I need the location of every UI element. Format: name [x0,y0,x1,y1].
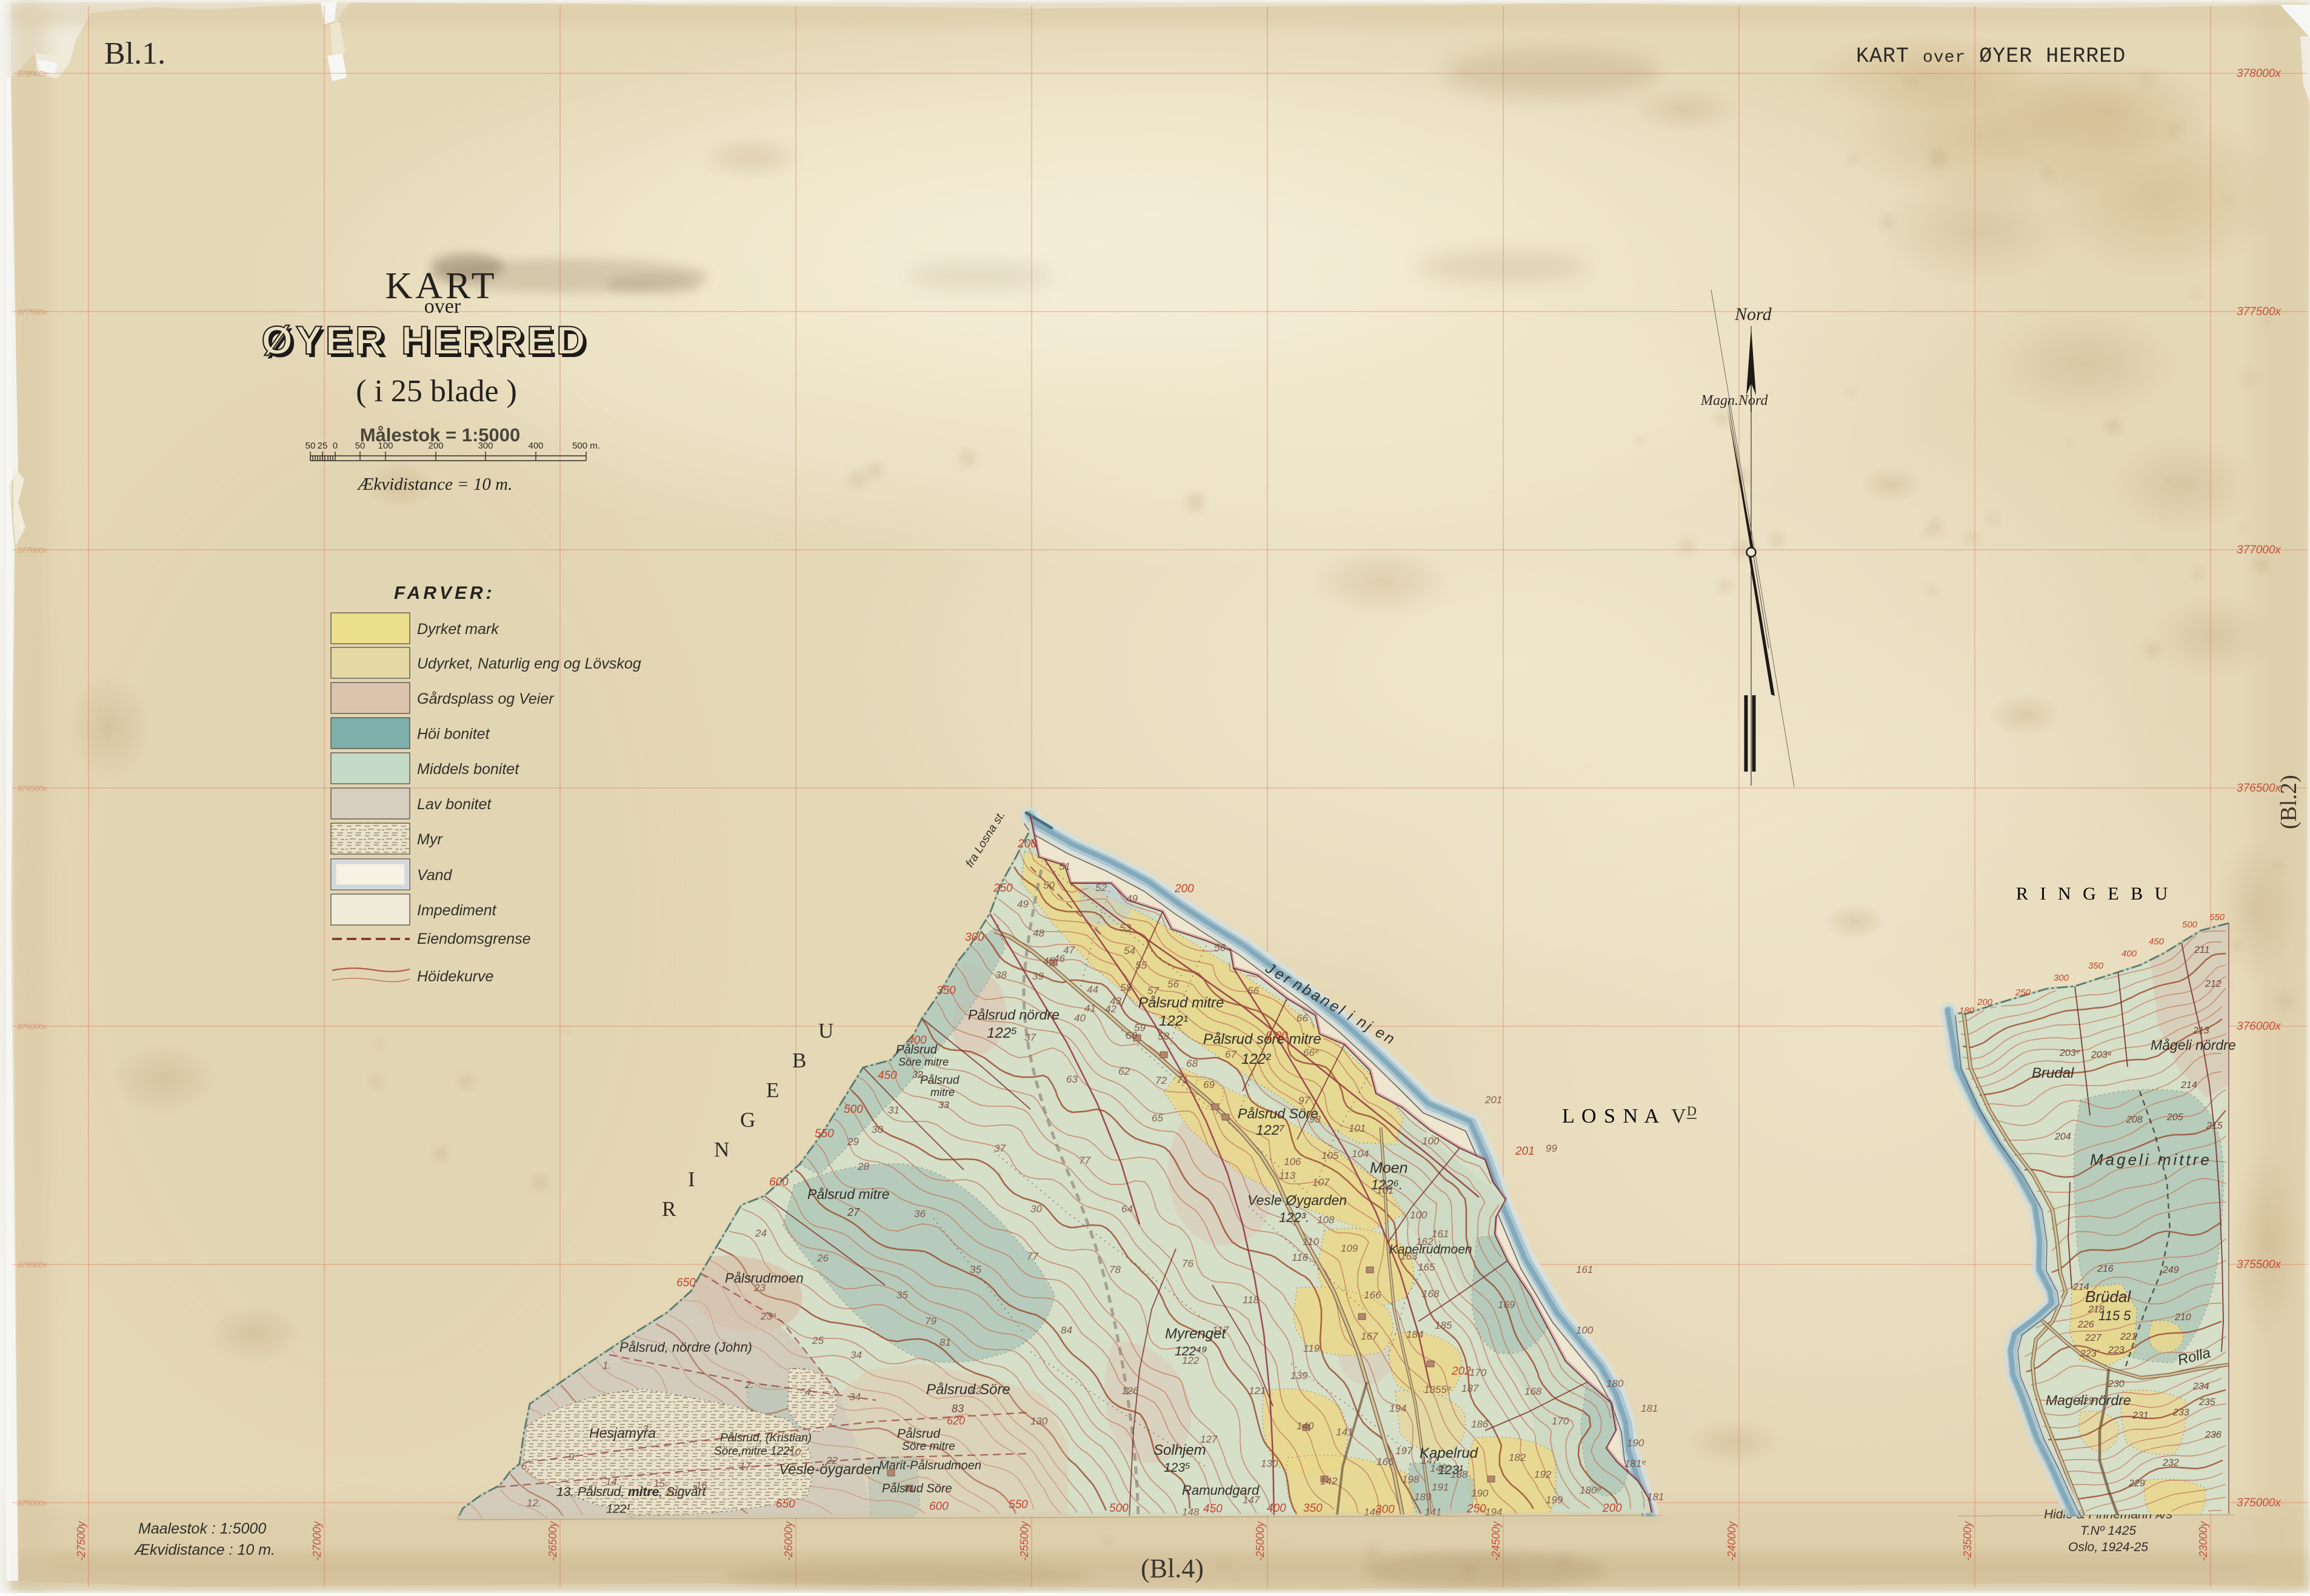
svg-text:T.Nº 1425: T.Nº 1425 [2080,1524,2136,1538]
svg-text:42: 42 [1105,1003,1117,1015]
svg-text:49: 49 [1126,893,1138,904]
svg-text:48: 48 [1033,927,1044,939]
svg-text:180: 180 [1606,1378,1624,1389]
svg-text:over: over [424,295,461,318]
svg-text:106: 106 [1284,1156,1301,1167]
svg-text:377500x: 377500x [2237,306,2282,318]
svg-text:-25000y: -25000y [1254,1521,1266,1561]
svg-text:200: 200 [1602,1502,1622,1515]
svg-text:71: 71 [1177,1074,1188,1086]
svg-text:Brudal: Brudal [2032,1065,2074,1081]
svg-text:37: 37 [1024,1032,1036,1043]
svg-text:Solhjem: Solhjem [1153,1442,1206,1458]
svg-text:mitre: mitre [930,1086,955,1098]
svg-text:35: 35 [970,1264,981,1275]
svg-text:0: 0 [333,441,338,451]
svg-text:36: 36 [914,1208,926,1220]
svg-text:Myr: Myr [417,831,443,848]
svg-text:300: 300 [478,441,493,451]
svg-text:186: 186 [1471,1418,1489,1430]
svg-text:400: 400 [1267,1502,1286,1515]
svg-text:214: 214 [2180,1080,2197,1090]
svg-text:66ᵉ: 66ᵉ [1303,1047,1319,1058]
svg-text:141: 141 [1336,1426,1353,1438]
svg-text:147: 147 [1243,1494,1260,1506]
svg-text:229: 229 [2128,1478,2145,1489]
svg-text:83: 83 [952,1403,964,1415]
svg-text:38: 38 [995,969,1007,981]
svg-text:R: R [662,1197,676,1221]
svg-text:205: 205 [2166,1112,2183,1123]
svg-text:E: E [766,1078,779,1102]
svg-text:100: 100 [1576,1324,1594,1336]
svg-text:-27000y: -27000y [311,1521,323,1561]
svg-text:166: 166 [1377,1456,1394,1467]
svg-text:13. Pålsrud, mitre, Sigvårt: 13. Pålsrud, mitre, Sigvårt [556,1485,706,1499]
svg-text:Bl.1.: Bl.1. [104,36,165,71]
svg-text:66: 66 [1297,1012,1308,1024]
svg-text:181: 181 [1647,1491,1664,1503]
svg-text:118: 118 [1243,1294,1260,1306]
svg-text:29: 29 [847,1136,859,1147]
svg-text:130: 130 [1261,1458,1278,1469]
svg-text:122: 122 [1182,1355,1200,1366]
svg-text:Moen: Moen [1370,1160,1408,1177]
svg-text:187: 187 [1461,1383,1479,1394]
svg-text:31: 31 [888,1104,900,1116]
svg-text:223´: 223´ [2080,1349,2100,1359]
svg-text:110: 110 [1303,1236,1320,1247]
svg-text:Magn.Nord: Magn.Nord [1700,393,1768,409]
svg-text:G: G [740,1108,755,1132]
svg-text:200: 200 [1977,997,1993,1007]
svg-text:Eiendomsgrense: Eiendomsgrense [417,930,531,947]
svg-text:450: 450 [2149,937,2165,947]
svg-text:50: 50 [355,441,366,451]
svg-text:122¹: 122¹ [606,1503,630,1516]
svg-text:1855ᵉ: 1855ᵉ [1424,1384,1451,1395]
svg-text:189: 189 [1414,1491,1432,1503]
svg-text:65: 65 [1152,1112,1163,1124]
svg-text:214: 214 [2072,1282,2089,1292]
svg-text:22: 22 [826,1455,838,1466]
svg-text:130: 130 [1030,1415,1048,1427]
svg-text:169: 169 [1498,1299,1515,1311]
svg-text:Ækvidistance = 10 m.: Ækvidistance = 10 m. [356,475,513,494]
svg-text:192: 192 [1534,1469,1552,1480]
svg-text:( i 25 blade ): ( i 25 blade ) [356,374,517,409]
svg-text:FARVER:: FARVER: [394,583,495,603]
svg-text:375000x: 375000x [17,1498,47,1508]
svg-text:201: 201 [1484,1094,1502,1106]
svg-text:78: 78 [1109,1264,1121,1275]
svg-text:77: 77 [1079,1155,1090,1166]
svg-text:76: 76 [1182,1258,1193,1269]
svg-text:450: 450 [1203,1503,1223,1515]
svg-text:Höidekurve: Höidekurve [417,968,493,985]
svg-text:99: 99 [1546,1143,1557,1154]
svg-text:202: 202 [1451,1365,1471,1378]
svg-text:550: 550 [2209,912,2225,923]
svg-text:197: 197 [1395,1445,1413,1457]
svg-text:98: 98 [1309,1114,1321,1125]
svg-text:229: 229 [2077,1396,2094,1406]
svg-text:376500x: 376500x [17,784,47,793]
svg-text:-26500y: -26500y [547,1521,559,1561]
svg-text:216: 216 [2097,1264,2114,1274]
svg-text:210: 210 [2174,1312,2191,1323]
svg-text:203ᵉ: 203ᵉ [2059,1048,2080,1058]
svg-text:100: 100 [378,441,393,451]
svg-text:600: 600 [769,1176,789,1189]
svg-text:250: 250 [2015,987,2031,998]
svg-text:68: 68 [1186,1058,1198,1069]
svg-text:190: 190 [1471,1487,1489,1499]
svg-text:Pålsrud, nördre (John): Pålsrud, nördre (John) [619,1340,752,1355]
svg-text:Pålsrud: Pålsrud [897,1427,941,1441]
svg-text:378000x: 378000x [2237,67,2282,80]
svg-text:52: 52 [1095,882,1107,893]
svg-text:2.: 2. [744,1379,753,1391]
svg-text:Nord: Nord [1734,304,1772,324]
svg-text:-24000y: -24000y [1726,1521,1738,1561]
svg-text:24: 24 [755,1227,767,1239]
svg-text:Dyrket mark: Dyrket mark [417,621,499,638]
svg-text:180: 180 [1959,1006,1975,1016]
svg-text:Söre,mitre 122²: Söre,mitre 122² [714,1445,794,1458]
svg-text:Mageli mittre: Mageli mittre [2090,1150,2212,1169]
svg-text:376000x: 376000x [2237,1020,2282,1033]
svg-text:208: 208 [2126,1115,2143,1125]
svg-text:30: 30 [872,1124,883,1135]
svg-text:212: 212 [2205,979,2222,989]
svg-text:34: 34 [849,1391,861,1403]
svg-text:N: N [714,1138,729,1161]
svg-text:49: 49 [1017,898,1029,910]
svg-text:-26000y: -26000y [783,1521,795,1561]
svg-text:234: 234 [2192,1381,2209,1392]
svg-text:79: 79 [925,1315,936,1327]
svg-text:-24500y: -24500y [1490,1521,1502,1561]
svg-text:104: 104 [1352,1148,1369,1160]
svg-text:Höi bonitet: Höi bonitet [417,726,490,743]
svg-text:101: 101 [1377,1184,1394,1196]
svg-text:16.: 16. [696,1480,710,1491]
svg-text:50: 50 [305,441,316,451]
svg-text:23: 23 [753,1282,766,1294]
svg-text:63: 63 [1066,1073,1078,1085]
svg-text:500: 500 [1109,1502,1129,1515]
svg-text:41: 41 [1084,1003,1096,1014]
svg-text:198: 198 [1402,1474,1420,1485]
svg-text:167: 167 [1361,1331,1378,1342]
svg-text:250: 250 [993,882,1013,895]
svg-text:97: 97 [1298,1095,1310,1106]
svg-text:56: 56 [1167,978,1179,990]
svg-text:375000x: 375000x [2237,1497,2282,1509]
svg-text:57: 57 [1147,985,1159,997]
svg-text:14.: 14. [606,1476,620,1487]
svg-text:53: 53 [1120,922,1131,933]
svg-text:142: 142 [1320,1475,1338,1487]
svg-text:Gårdsplass og Veier: Gårdsplass og Veier [417,690,555,707]
svg-text:26: 26 [816,1252,829,1264]
svg-text:37: 37 [994,1143,1006,1154]
svg-text:377000x: 377000x [17,546,47,555]
svg-text:Pålsrud Söre: Pålsrud Söre [882,1482,952,1495]
svg-text:375500x: 375500x [17,1260,47,1269]
svg-text:R I N G E B U: R I N G E B U [2016,884,2171,904]
svg-text:-23000y: -23000y [2197,1521,2209,1561]
svg-text:201: 201 [1515,1145,1535,1158]
svg-text:400: 400 [907,1034,927,1047]
svg-text:376500x: 376500x [2237,782,2282,795]
svg-text:121: 121 [1249,1385,1266,1397]
svg-text:L O S N A: L O S N A [1562,1105,1660,1127]
svg-text:62: 62 [1118,1066,1130,1077]
svg-text:67: 67 [1225,1049,1237,1060]
svg-text:(Bl.4): (Bl.4) [1141,1554,1204,1583]
svg-text:226: 226 [2077,1320,2094,1330]
svg-text:127: 127 [1200,1434,1218,1445]
svg-text:123⁵: 123⁵ [1164,1461,1190,1475]
svg-text:15.: 15. [653,1478,668,1489]
svg-text:72: 72 [1155,1075,1167,1086]
svg-text:122⁷: 122⁷ [1256,1122,1284,1138]
svg-text:D: D [1687,1103,1697,1118]
svg-text:350: 350 [1303,1502,1323,1515]
svg-text:200: 200 [1174,883,1194,895]
svg-text:55: 55 [1135,960,1147,971]
svg-text:Mågeli nördre: Mågeli nördre [2151,1037,2236,1053]
svg-text:377500x: 377500x [17,307,47,316]
svg-text:45: 45 [1043,955,1055,967]
svg-text:163: 163 [1400,1250,1418,1262]
svg-text:126: 126 [1121,1385,1139,1397]
svg-text:Söre mitre: Söre mitre [902,1440,955,1453]
svg-text:231: 231 [2132,1411,2149,1421]
svg-text:161: 161 [1576,1264,1593,1275]
svg-text:Pålsrud nördre: Pålsrud nördre [968,1007,1060,1023]
svg-text:33: 33 [938,1100,949,1110]
svg-text:Pålsrud Söre: Pålsrud Söre [926,1381,1010,1398]
svg-text:81: 81 [940,1337,951,1348]
svg-text:376000x: 376000x [17,1022,47,1031]
svg-text:Söre mitre: Söre mitre [898,1056,949,1068]
svg-text:-27500y: -27500y [75,1521,87,1561]
svg-text:30: 30 [1030,1203,1042,1215]
svg-text:64: 64 [1121,1203,1133,1215]
svg-text:Pålsrud mitre: Pålsrud mitre [807,1186,889,1202]
svg-text:Vand: Vand [417,867,453,884]
svg-text:17.: 17. [739,1460,754,1472]
svg-text:139: 139 [1290,1370,1308,1381]
svg-text:2.00: 2.00 [1265,1030,1288,1043]
svg-text:116: 116 [1292,1252,1309,1263]
svg-text:ØYER HERRED: ØYER HERRED [261,318,588,362]
svg-text:Middels bonitet: Middels bonitet [417,761,519,778]
svg-text:27: 27 [847,1206,860,1218]
svg-text:232: 232 [2162,1458,2179,1468]
svg-text:58: 58 [1158,1030,1169,1042]
svg-text:46: 46 [1053,953,1065,964]
svg-text:25: 25 [812,1335,824,1346]
svg-text:148: 148 [1430,1463,1447,1474]
svg-text:100: 100 [1422,1135,1440,1147]
svg-text:170: 170 [1552,1415,1569,1427]
svg-text:221: 221 [2120,1332,2137,1342]
svg-text:12.: 12. [527,1497,541,1509]
svg-text:25: 25 [318,441,328,451]
svg-text:44: 44 [1087,984,1098,995]
svg-text:Pålsrud Söre: Pålsrud Söre [1238,1106,1318,1121]
svg-text:450: 450 [878,1069,897,1082]
svg-text:10.: 10. [789,1446,804,1458]
svg-text:300: 300 [2054,973,2069,983]
svg-text:181ᵉ: 181ᵉ [1624,1458,1646,1469]
svg-text:Ækvidistance : 10 m.: Ækvidistance : 10 m. [134,1541,275,1558]
svg-text:162: 162 [1416,1236,1434,1247]
svg-text:215: 215 [2206,1121,2223,1131]
svg-text:109: 109 [1341,1243,1358,1254]
svg-text:V: V [1671,1105,1686,1127]
svg-text:165: 165 [1418,1261,1435,1273]
svg-text:166: 166 [1364,1289,1381,1301]
svg-text:168: 168 [1524,1386,1542,1397]
svg-text:60: 60 [1126,1030,1137,1041]
svg-text:105: 105 [1321,1150,1339,1161]
svg-text:218: 218 [2088,1304,2105,1315]
svg-text:-23500y: -23500y [1961,1521,1974,1561]
svg-text:9.: 9. [569,1451,577,1463]
svg-text:182: 182 [1509,1452,1526,1463]
svg-text:375500x: 375500x [2237,1258,2282,1271]
svg-text:550: 550 [1009,1498,1028,1511]
svg-text:119: 119 [1303,1343,1320,1354]
svg-text:200: 200 [1017,838,1037,850]
svg-text:122⁵: 122⁵ [987,1025,1017,1041]
svg-text:400: 400 [528,441,543,451]
svg-text:100: 100 [1410,1209,1427,1221]
svg-text:6.: 6. [521,1460,530,1472]
svg-text:194: 194 [1389,1403,1406,1414]
svg-text:211: 211 [2194,945,2210,955]
svg-text:3.: 3. [643,1423,651,1435]
svg-text:51: 51 [1059,861,1070,872]
svg-text:600: 600 [929,1500,949,1513]
svg-text:650: 650 [776,1498,795,1511]
svg-text:Marit-Pålsrudmoen: Marit-Pålsrudmoen [879,1459,981,1472]
svg-text:108: 108 [1317,1214,1335,1226]
svg-text:180ᵉ: 180ᵉ [1580,1484,1601,1496]
svg-text:249: 249 [2162,1265,2179,1275]
svg-text:200: 200 [428,441,443,451]
svg-text:181: 181 [1641,1403,1658,1414]
svg-text:300: 300 [1375,1503,1395,1516]
svg-text:40: 40 [1074,1012,1086,1024]
svg-text:Udyrket, Naturlig eng og Lövsk: Udyrket, Naturlig eng og Lövskog [417,655,641,672]
svg-text:Pålsrud: Pålsrud [920,1074,960,1087]
svg-text:223: 223 [2108,1345,2125,1355]
svg-text:54: 54 [1124,945,1135,957]
svg-text:58: 58 [1120,982,1132,993]
svg-text:Pålsrud, (Kristian): Pålsrud, (Kristian) [720,1432,812,1444]
svg-text:378000x: 378000x [17,69,47,78]
svg-text:-25500y: -25500y [1018,1521,1030,1561]
svg-text:184: 184 [1406,1329,1423,1340]
svg-text:191: 191 [1432,1481,1449,1493]
svg-text:300: 300 [965,931,984,944]
svg-text:84: 84 [1061,1324,1072,1336]
svg-text:B: B [792,1049,806,1072]
svg-text:Maalestok : 1:5000: Maalestok : 1:5000 [138,1520,266,1537]
svg-text:1.: 1. [603,1360,611,1371]
svg-text:56: 56 [1247,985,1259,997]
svg-text:190: 190 [1627,1437,1644,1449]
svg-text:101: 101 [1349,1123,1366,1134]
svg-text:34: 34 [850,1349,862,1361]
svg-text:236: 236 [2205,1430,2222,1440]
svg-text:4.: 4. [805,1386,813,1398]
svg-text:350: 350 [2088,961,2104,971]
svg-text:185: 185 [1435,1320,1452,1331]
svg-text:107: 107 [1312,1177,1330,1188]
svg-text:Pålsrud mitre: Pålsrud mitre [1138,995,1224,1011]
svg-text:350: 350 [936,984,956,997]
svg-text:188: 188 [1450,1469,1468,1480]
svg-text:Vesle Øygarden: Vesle Øygarden [1247,1192,1347,1208]
svg-text:170: 170 [1469,1367,1487,1378]
svg-text:400: 400 [2121,949,2137,959]
svg-text:500: 500 [844,1103,863,1116]
svg-text:77: 77 [1027,1250,1038,1262]
svg-text:500: 500 [2182,920,2198,930]
svg-text:235: 235 [2198,1397,2215,1407]
svg-text:161: 161 [1432,1228,1449,1240]
svg-text:233: 233 [2172,1407,2189,1418]
svg-text:550: 550 [815,1127,834,1140]
svg-text:230: 230 [2108,1379,2125,1389]
svg-text:117: 117 [1212,1324,1229,1336]
svg-text:204: 204 [2054,1132,2071,1142]
svg-text:Pålsrud söre mitre: Pålsrud söre mitre [1203,1031,1321,1047]
svg-text:203ᵃ: 203ᵃ [2091,1050,2112,1060]
svg-text:39: 39 [1032,970,1044,982]
svg-text:113: 113 [1279,1170,1296,1181]
svg-text:KART over ØYER HERRED: KART over ØYER HERRED [1856,44,2126,68]
svg-text:650: 650 [676,1277,696,1289]
svg-text:28: 28 [857,1161,869,1172]
svg-text:Impediment: Impediment [417,902,497,919]
svg-text:69: 69 [1203,1079,1215,1090]
svg-text:(Bl.2): (Bl.2) [2276,775,2302,829]
svg-text:377000x: 377000x [2237,544,2282,556]
svg-text:227: 227 [2085,1333,2102,1343]
svg-text:82: 82 [970,1385,981,1397]
svg-text:140: 140 [1297,1420,1314,1432]
svg-text:250: 250 [1466,1503,1486,1515]
svg-text:Oslo, 1924-25: Oslo, 1924-25 [2068,1540,2148,1554]
svg-text:Lav bonitet: Lav bonitet [417,796,492,813]
svg-text:122¹: 122¹ [1159,1013,1188,1029]
svg-text:50: 50 [1043,880,1055,891]
svg-text:56: 56 [1214,942,1226,953]
svg-text:35: 35 [896,1289,908,1301]
svg-text:122²: 122² [1241,1051,1271,1067]
svg-text:500 m.: 500 m. [572,441,600,451]
svg-text:I: I [688,1167,695,1191]
svg-text:122³.: 122³. [1279,1210,1309,1225]
